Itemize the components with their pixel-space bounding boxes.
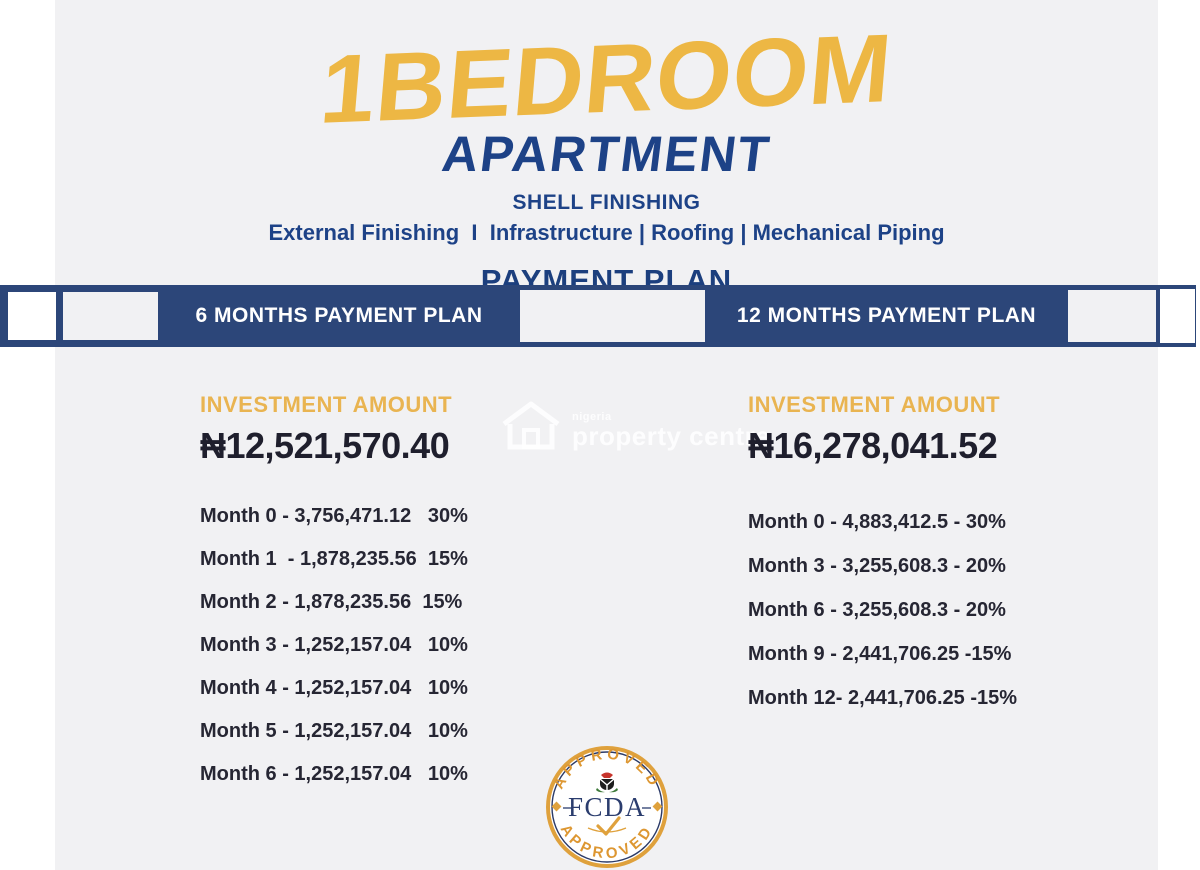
schedule-row: Month 9 - 2,441,706.25 -15% (748, 643, 1058, 687)
schedule-row: Month 6 - 3,255,608.3 - 20% (748, 599, 1058, 643)
banner-decor-gray-left (63, 292, 158, 340)
schedule-row: Month 0 - 3,756,471.12 30% (200, 505, 500, 548)
six-months-plan-header: 6 MONTHS PAYMENT PLAN (158, 285, 520, 347)
schedule-row: Month 12- 2,441,706.25 -15% (748, 687, 1058, 731)
payment-schedule: Month 0 - 3,756,471.12 30% Month 1 - 1,8… (200, 505, 500, 806)
twelve-months-plan-column: INVESTMENT AMOUNT ₦16,278,041.52 Month 0… (748, 392, 1058, 731)
investment-amount-value: ₦12,521,570.40 (200, 425, 500, 467)
banner-decor-gray-middle (520, 290, 705, 342)
seal-fcda-text: FCDA (568, 792, 646, 822)
schedule-row: Month 1 - 1,878,235.56 15% (200, 548, 500, 591)
investment-amount-value: ₦16,278,041.52 (748, 425, 1058, 467)
schedule-row: Month 4 - 1,252,157.04 10% (200, 677, 500, 720)
schedule-row: Month 5 - 1,252,157.04 10% (200, 720, 500, 763)
schedule-row: Month 3 - 1,252,157.04 10% (200, 634, 500, 677)
finishing-type-label: SHELL FINISHING (55, 191, 1158, 215)
schedule-row: Month 3 - 3,255,608.3 - 20% (748, 555, 1058, 599)
schedule-row: Month 0 - 4,883,412.5 - 30% (748, 511, 1058, 555)
title-block: 1BEDROOM APARTMENT SHELL FINISHING Exter… (55, 30, 1158, 299)
house-icon (500, 400, 562, 450)
fcda-approved-seal: APPROVED APPROVED FCDA (544, 744, 670, 870)
plan-header-banner: 6 MONTHS PAYMENT PLAN 12 MONTHS PAYMENT … (0, 285, 1196, 347)
flyer-subtitle-apartment: APARTMENT (52, 129, 1161, 179)
investment-amount-label: INVESTMENT AMOUNT (200, 392, 500, 418)
flyer-canvas: 1BEDROOM APARTMENT SHELL FINISHING Exter… (0, 0, 1200, 870)
property-centre-watermark: nigeria property centre (500, 400, 770, 450)
schedule-row: Month 2 - 1,878,235.56 15% (200, 591, 500, 634)
finishing-details: External Finishing I Infrastructure | Ro… (55, 220, 1158, 246)
banner-decor-gray-right (1068, 290, 1156, 342)
watermark-line2: property centre (572, 423, 770, 450)
schedule-row: Month 6 - 1,252,157.04 10% (200, 763, 500, 806)
watermark-text: nigeria property centre (572, 411, 770, 450)
banner-decor-white-right (1160, 289, 1195, 343)
six-months-plan-column: INVESTMENT AMOUNT ₦12,521,570.40 Month 0… (200, 392, 500, 806)
twelve-months-plan-header: 12 MONTHS PAYMENT PLAN (705, 285, 1068, 347)
payment-schedule: Month 0 - 4,883,412.5 - 30% Month 3 - 3,… (748, 511, 1058, 731)
investment-amount-label: INVESTMENT AMOUNT (748, 392, 1058, 418)
banner-decor-white-left (8, 292, 56, 340)
